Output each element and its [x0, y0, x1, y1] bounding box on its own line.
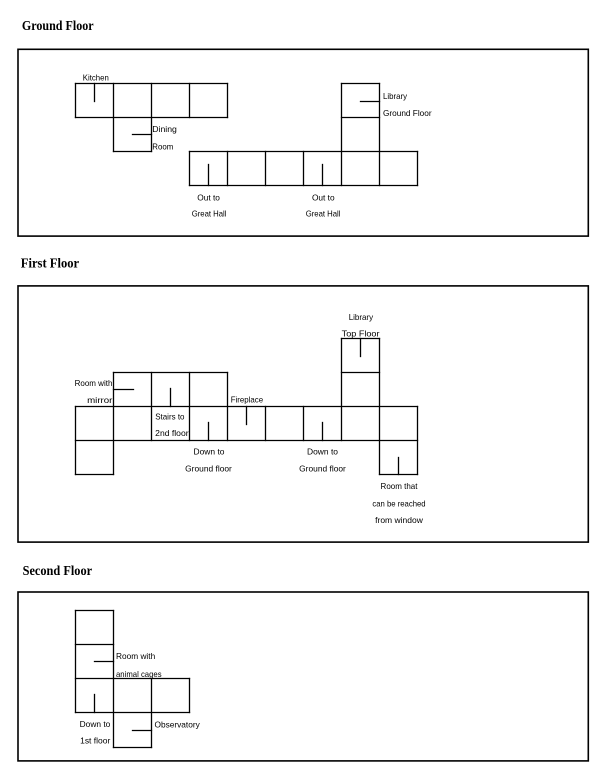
svg-text:Observatory: Observatory: [155, 719, 201, 729]
svg-text:Dining: Dining: [152, 124, 177, 134]
svg-text:Room that: Room that: [381, 481, 418, 491]
svg-text:Room with: Room with: [75, 378, 113, 388]
svg-text:Ground Floor: Ground Floor: [22, 19, 94, 34]
svg-text:animal cages: animal cages: [116, 669, 162, 679]
svg-text:Top Floor: Top Floor: [342, 329, 380, 339]
svg-text:Room with: Room with: [116, 651, 155, 661]
svg-text:1st floor: 1st floor: [80, 736, 110, 746]
svg-text:Second Floor: Second Floor: [23, 564, 93, 579]
svg-text:from window: from window: [375, 515, 424, 525]
svg-text:2nd floor: 2nd floor: [155, 428, 189, 438]
svg-text:Room: Room: [152, 141, 173, 151]
svg-text:Great Hall: Great Hall: [192, 209, 227, 219]
svg-text:Down to: Down to: [307, 447, 338, 457]
svg-text:Down to: Down to: [80, 719, 111, 729]
svg-text:Down to: Down to: [194, 447, 225, 457]
svg-text:Fireplace: Fireplace: [231, 395, 264, 405]
svg-text:Ground Floor: Ground Floor: [383, 108, 432, 118]
svg-text:Out to: Out to: [197, 192, 220, 202]
svg-text:First Floor: First Floor: [21, 256, 79, 271]
svg-text:Great Hall: Great Hall: [306, 209, 341, 219]
svg-text:Library: Library: [383, 91, 408, 101]
svg-text:mirror: mirror: [87, 395, 112, 405]
svg-text:Out to: Out to: [312, 192, 335, 202]
svg-text:can be reached: can be reached: [372, 498, 425, 508]
svg-text:Library: Library: [349, 312, 374, 322]
svg-text:Ground floor: Ground floor: [299, 463, 346, 473]
svg-text:Kitchen: Kitchen: [83, 73, 109, 83]
svg-text:Stairs to: Stairs to: [155, 412, 185, 422]
svg-text:Ground floor: Ground floor: [185, 463, 232, 473]
